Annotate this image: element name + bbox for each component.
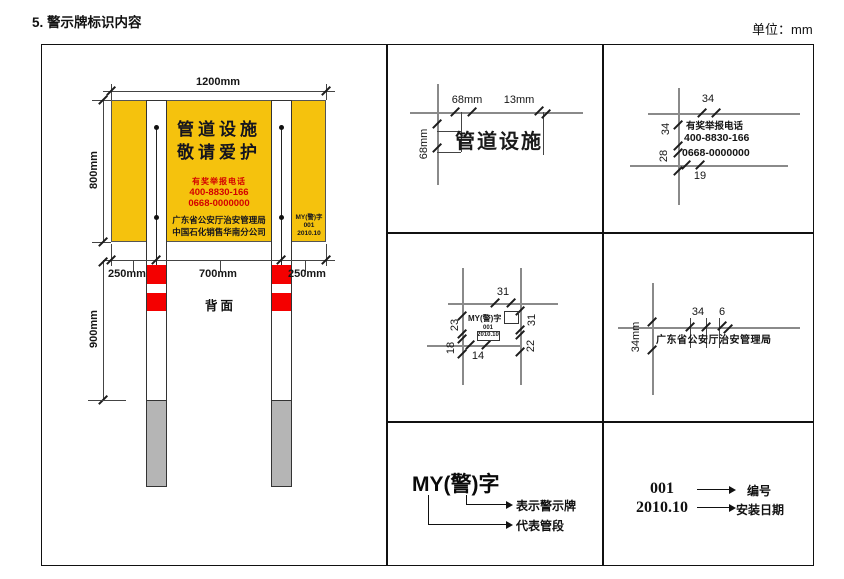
detail-code-line1: MY(警)字: [468, 313, 501, 324]
detail-title-text: 管道设施: [455, 125, 543, 154]
sign-code-line3: 2010.10: [293, 230, 325, 238]
extension-line: [111, 84, 112, 100]
leader-line: [428, 495, 429, 525]
legend-code-text: MY(警)字: [412, 468, 500, 498]
extension-line: [326, 244, 327, 266]
dim-label-char-width: 68mm: [444, 94, 490, 106]
extension-line: [326, 84, 327, 100]
dim-label-left: 250mm: [104, 268, 150, 280]
dim-label-left-lower: 18: [445, 325, 457, 371]
sign-title-line1: 管道设施: [167, 115, 271, 140]
bolt-dot: [154, 215, 159, 220]
panel-divider-vertical-2: [602, 44, 604, 566]
dim-line-post-height: [103, 260, 104, 400]
dim-label-width: 1200mm: [195, 76, 241, 88]
crosshair-line: [618, 327, 800, 329]
dim-label-bottom: 19: [677, 170, 723, 182]
dim-line-width: [103, 91, 335, 92]
panel-divider-horizontal-1: [386, 232, 814, 234]
dim-label-bottom: 14: [455, 350, 501, 362]
bolt-axis-line: [281, 127, 282, 265]
crosshair-line: [652, 283, 654, 395]
legend-code-meaning-upper: 表示警示牌: [516, 497, 576, 514]
dim-line-height: [103, 100, 104, 242]
dim-label-right: 250mm: [284, 268, 330, 280]
crosshair-line: [427, 345, 522, 347]
dim-label-right-lower: 22: [525, 323, 537, 369]
dim-label-post-height: 900mm: [88, 306, 100, 352]
extension-line: [111, 244, 112, 266]
sign-org2: 中国石化销售华南分公司: [167, 226, 271, 238]
crosshair-line: [448, 303, 558, 305]
leader-line: [428, 524, 506, 525]
legend-date: 2010.10: [618, 499, 706, 517]
sign-code-line2: 001: [293, 222, 325, 230]
bolt-dot: [154, 125, 159, 130]
char-box-outline: [504, 311, 519, 324]
legend-number: 001: [630, 480, 694, 498]
leader-line: [697, 507, 729, 508]
detail-org-text: 广东省公安厅治安管理局: [656, 331, 772, 346]
panel-divider-horizontal-2: [386, 421, 814, 423]
unit-label: 单位：mm: [752, 19, 813, 38]
bracket-line: [543, 112, 544, 155]
ground-line: [88, 400, 126, 401]
detail-hotline-line3: 0668-0000000: [682, 147, 750, 159]
dim-label-gap: 6: [710, 306, 734, 318]
drawing-page: 5. 警示牌标识内容 单位：mm 1200mm 800mm 管道设施 敬请爱护 …: [0, 0, 844, 579]
dim-label-height: 34mm: [630, 314, 642, 360]
sign-phone2: 0668-0000000: [167, 198, 271, 209]
crosshair-line: [410, 112, 583, 114]
bolt-dot: [279, 125, 284, 130]
post-red-stripe: [147, 293, 166, 311]
leader-line: [697, 489, 729, 490]
detail-hotline-line2: 400-8830-166: [684, 132, 749, 144]
dim-label-center: 700mm: [195, 268, 241, 280]
bolt-axis-line: [156, 127, 157, 265]
crosshair-line: [437, 84, 439, 185]
dim-line-spacing: [103, 260, 335, 261]
arrowhead-icon: [506, 501, 513, 509]
arrowhead-icon: [729, 486, 736, 494]
sign-code-line1: MY(警)字: [293, 214, 325, 222]
sign-title-line2: 敬请爱护: [167, 138, 271, 163]
post-buried-section: [272, 400, 291, 486]
leader-line: [466, 504, 506, 505]
dim-label-char-gap: 13mm: [496, 94, 542, 106]
sign-phone1: 400-8830-166: [167, 187, 271, 198]
back-side-label: 背面: [205, 295, 236, 314]
crosshair-line: [630, 165, 788, 167]
dim-label-height: 800mm: [88, 147, 100, 193]
dim-label-left-lower: 28: [658, 133, 670, 179]
date-box-outline: [477, 331, 500, 341]
legend-date-label: 安装日期: [736, 501, 784, 518]
page-title: 5. 警示牌标识内容: [32, 11, 142, 31]
arrowhead-icon: [506, 521, 513, 529]
legend-code-meaning-lower: 代表管段: [516, 517, 564, 534]
sign-hotline-label: 有奖举报电话: [167, 176, 271, 187]
arrowhead-icon: [729, 504, 736, 512]
post-red-stripe: [272, 293, 291, 311]
detail-hotline-line1: 有奖举报电话: [686, 118, 743, 132]
sign-org1: 广东省公安厅治安管理局: [167, 214, 271, 226]
dim-label-char-height: 68mm: [418, 121, 430, 167]
dim-label-top: 34: [685, 93, 731, 105]
dim-label-top: 31: [480, 286, 526, 298]
crosshair-line: [462, 268, 464, 385]
post-buried-section: [147, 400, 166, 486]
panel-divider-vertical-1: [386, 44, 388, 566]
bolt-dot: [279, 215, 284, 220]
legend-number-label: 编号: [747, 482, 771, 499]
